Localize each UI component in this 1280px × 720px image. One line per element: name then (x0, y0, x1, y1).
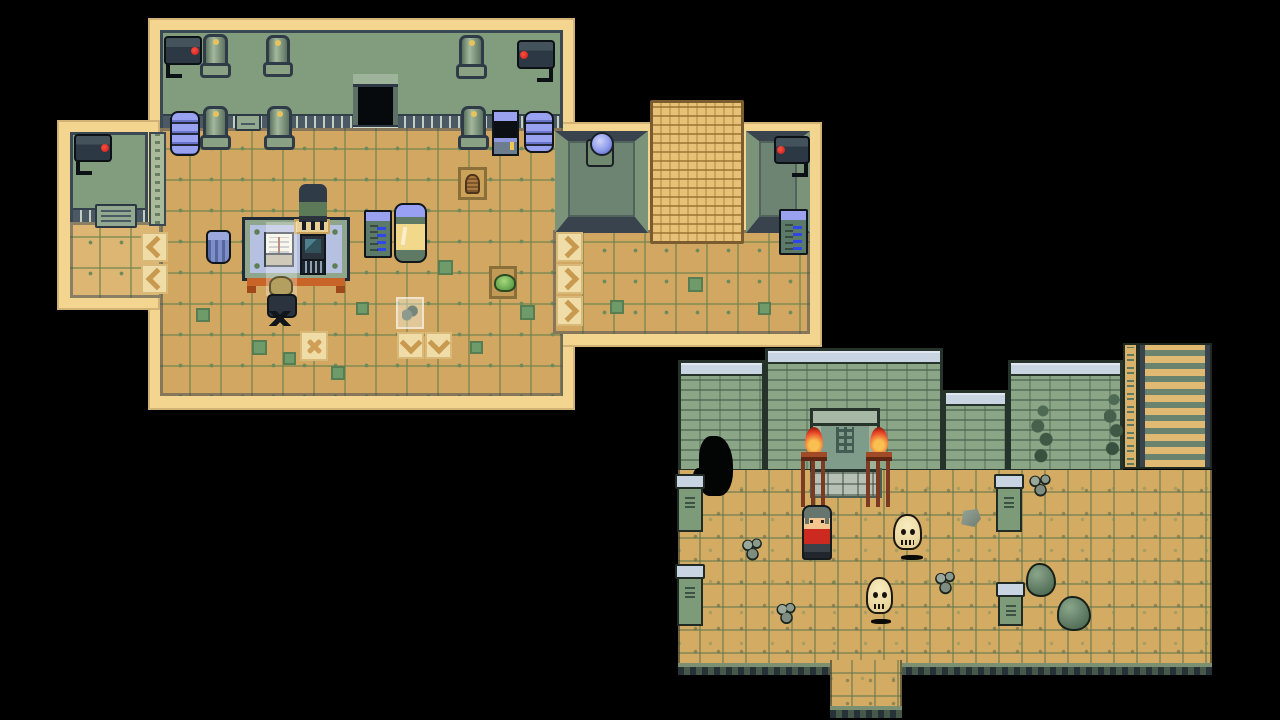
wall-vine (1104, 391, 1124, 463)
rubble-pile (741, 537, 764, 561)
stone-pillar (998, 582, 1023, 626)
floating-skull[interactable] (866, 577, 893, 614)
skull-shadow (871, 619, 891, 624)
glyph-column (1123, 343, 1138, 469)
boulder (1026, 563, 1056, 597)
rubble-pile (1027, 473, 1054, 497)
rubble-pile (934, 570, 957, 595)
player-character[interactable] (802, 505, 832, 560)
game-viewport[interactable] (0, 0, 1280, 720)
stone-pillar (677, 474, 703, 532)
stairway[interactable] (1138, 343, 1212, 469)
temple-courtyard (0, 0, 1280, 720)
courtyard-wall-notch (943, 390, 1008, 472)
floating-skull[interactable] (893, 514, 922, 550)
stone-pillar (996, 474, 1022, 532)
courtyard-floor-exit[interactable] (830, 660, 902, 718)
skull-shadow (901, 555, 923, 560)
rubble-pile (776, 602, 797, 624)
boulder (1057, 596, 1091, 631)
stone-pillar (677, 564, 703, 626)
flaming-brazier (864, 427, 894, 507)
wall-vine (1030, 403, 1056, 469)
flaming-brazier (799, 427, 829, 507)
